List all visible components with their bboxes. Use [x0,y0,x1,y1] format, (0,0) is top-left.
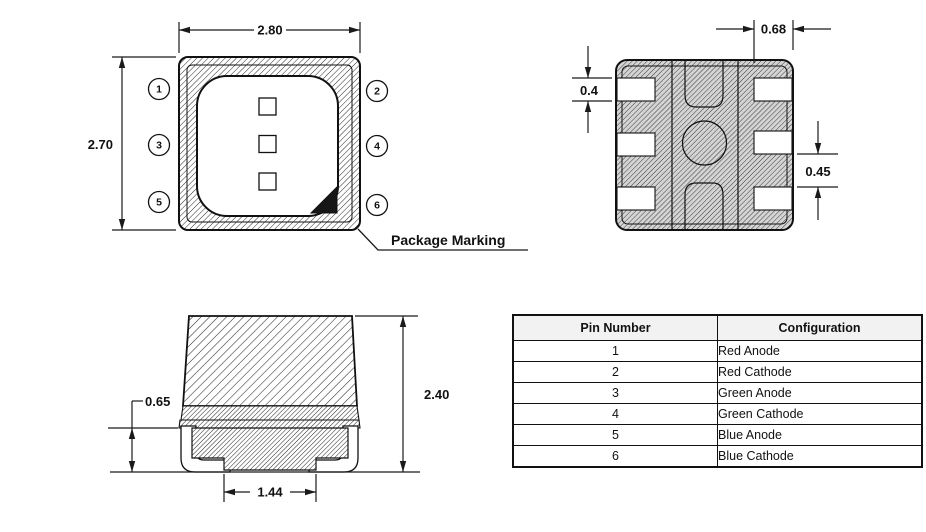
header-configuration: Configuration [718,315,923,341]
side-view-flange-upper [181,406,359,420]
configuration-cell: Blue Anode [718,425,923,446]
pin-number-cell: 5 [513,425,718,446]
table-row: 3 Green Anode [513,383,922,404]
table-row: 6 Blue Cathode [513,446,922,468]
pad-left-bottom [617,187,655,210]
pin-6-label: 6 [374,200,380,212]
side-view: 0.65 2.40 1.44 [108,316,449,502]
dim-lead-span-value: 1.44 [257,485,283,500]
dim-pad-gap-value: 0.45 [805,164,830,179]
configuration-cell: Green Cathode [718,404,923,425]
table-row: 2 Red Cathode [513,362,922,383]
pin-1-label: 1 [156,84,162,96]
pad-right-middle [754,131,792,154]
configuration-cell: Green Anode [718,383,923,404]
pin-4-label: 4 [374,141,380,153]
led-package-drawing: 2.80 2.70 1 3 5 2 4 6 Package Marking [0,0,926,532]
led-die-square-1 [259,98,276,115]
side-view-flange-lower [179,420,360,428]
dim-height-value: 2.70 [88,137,113,152]
pin-number-cell: 4 [513,404,718,425]
side-view-lens-body [183,316,357,406]
bottom-pad-view: 0.68 0.4 0.45 [572,20,838,230]
pin-number-cell: 1 [513,341,718,362]
pin-2-label: 2 [374,86,380,98]
pin-number-cell: 6 [513,446,718,468]
pad-right-bottom [754,187,792,210]
table-row: 5 Blue Anode [513,425,922,446]
configuration-cell: Red Anode [718,341,923,362]
pin-configuration-table: Pin Number Configuration 1 Red Anode 2 R… [512,314,923,468]
dim-total-height-value: 2.40 [424,387,449,402]
configuration-cell: Red Cathode [718,362,923,383]
dim-standoff-value: 0.65 [145,394,170,409]
pin-5-label: 5 [156,197,162,209]
dim-pad-length-value: 0.68 [761,22,786,37]
dimension-standoff [108,401,178,472]
pad-left-top [617,78,655,101]
pin-number-cell: 2 [513,362,718,383]
pin-3-label: 3 [156,140,162,152]
dim-width-value: 2.80 [257,23,282,38]
led-die-square-2 [259,136,276,153]
dimension-total-height [355,316,418,472]
header-pin-number: Pin Number [513,315,718,341]
package-marking-label: Package Marking [391,232,505,248]
pin-number-cell: 3 [513,383,718,404]
table-header-row: Pin Number Configuration [513,315,922,341]
top-view: 2.80 2.70 1 3 5 2 4 6 Package Marking [88,22,528,250]
configuration-cell: Blue Cathode [718,446,923,468]
table-row: 4 Green Cathode [513,404,922,425]
pad-left-middle [617,133,655,156]
table-row: 1 Red Anode [513,341,922,362]
pad-right-top [754,78,792,101]
led-die-square-3 [259,173,276,190]
dim-pad-height-value: 0.4 [580,83,599,98]
